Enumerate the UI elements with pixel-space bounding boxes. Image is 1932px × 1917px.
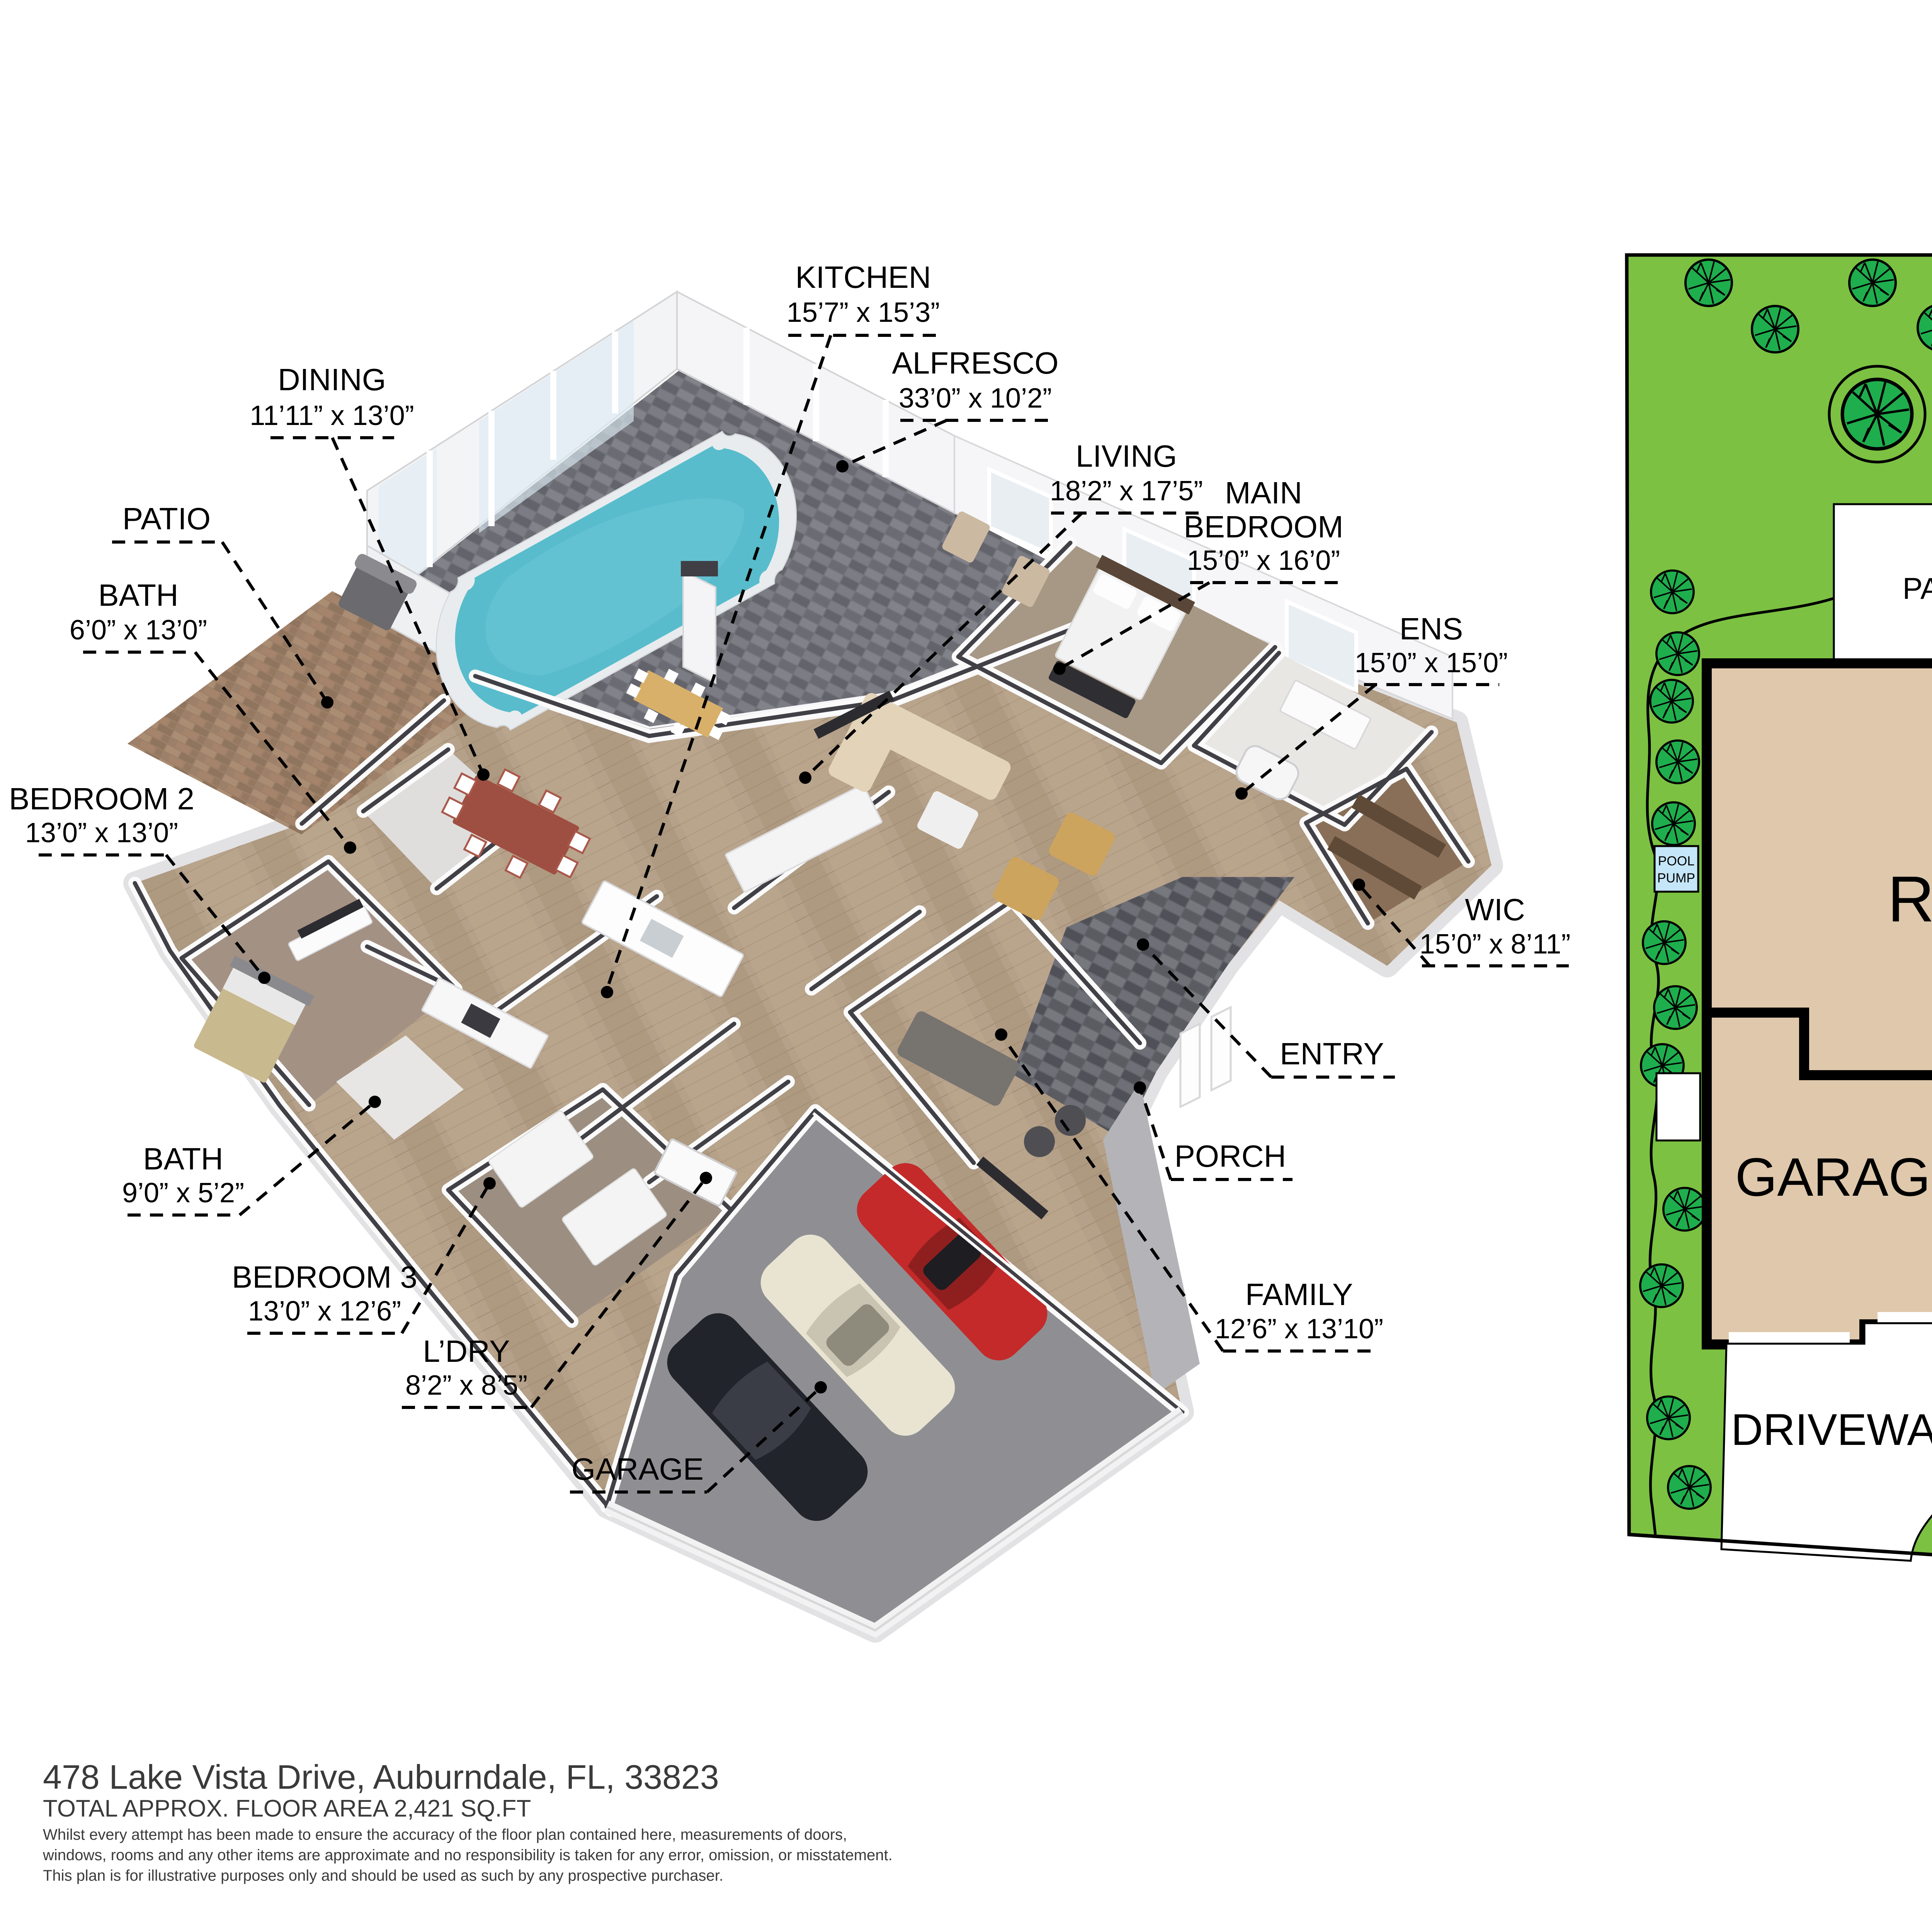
svg-text:PATIO: PATIO	[122, 501, 211, 536]
svg-text:windows, rooms and any other i: windows, rooms and any other items are a…	[43, 1847, 893, 1864]
svg-text:15’0” x 8’11”: 15’0” x 8’11”	[1420, 929, 1571, 960]
svg-text:BEDROOM 2: BEDROOM 2	[9, 782, 194, 816]
svg-text:GARAGE: GARAGE	[571, 1452, 704, 1486]
svg-text:ALFRESCO: ALFRESCO	[892, 346, 1058, 380]
svg-text:13’0” x 13’0”: 13’0” x 13’0”	[25, 817, 178, 848]
svg-text:PORCH: PORCH	[1175, 1139, 1286, 1173]
svg-text:15’7” x 15’3”: 15’7” x 15’3”	[787, 297, 940, 328]
svg-text:ENTRY: ENTRY	[1280, 1037, 1384, 1071]
svg-text:PATIO: PATIO	[1903, 571, 1932, 605]
svg-text:15’0” x 15’0”: 15’0” x 15’0”	[1355, 647, 1508, 678]
svg-text:BEDROOM: BEDROOM	[1184, 510, 1343, 544]
svg-text:LIVING: LIVING	[1076, 439, 1177, 473]
svg-text:478 Lake Vista Drive, Auburnda: 478 Lake Vista Drive, Auburndale, FL, 33…	[43, 1758, 719, 1796]
svg-text:13’0” x 12’6”: 13’0” x 12’6”	[248, 1296, 401, 1327]
svg-text:BEDROOM 3: BEDROOM 3	[232, 1260, 417, 1294]
svg-text:12’6” x 13’10”: 12’6” x 13’10”	[1215, 1314, 1383, 1344]
svg-text:MAIN: MAIN	[1225, 476, 1302, 510]
svg-text:BATH: BATH	[98, 578, 178, 612]
svg-text:This plan is for illustrative: This plan is for illustrative purposes o…	[43, 1867, 723, 1884]
svg-text:DINING: DINING	[278, 362, 386, 397]
svg-text:9’0” x 5’2”: 9’0” x 5’2”	[122, 1178, 244, 1208]
svg-text:RESIDENCE: RESIDENCE	[1888, 863, 1932, 935]
svg-text:ENS: ENS	[1400, 612, 1463, 646]
svg-text:DRIVEWAY: DRIVEWAY	[1731, 1405, 1932, 1455]
svg-text:POOL: POOL	[1658, 854, 1694, 868]
svg-text:11’11” x 13’0”: 11’11” x 13’0”	[250, 400, 414, 431]
svg-text:8’2” x 8’5”: 8’2” x 8’5”	[405, 1370, 527, 1401]
svg-text:PUMP: PUMP	[1657, 871, 1695, 885]
svg-text:KITCHEN: KITCHEN	[795, 260, 931, 294]
svg-text:18’2” x 17’5”: 18’2” x 17’5”	[1050, 476, 1203, 506]
svg-text:FAMILY: FAMILY	[1245, 1277, 1353, 1312]
svg-text:33’0” x 10’2”: 33’0” x 10’2”	[899, 383, 1052, 414]
svg-text:15’0” x 16’0”: 15’0” x 16’0”	[1187, 545, 1340, 576]
svg-text:L’DRY: L’DRY	[423, 1334, 510, 1368]
svg-text:Whilst every attempt has been: Whilst every attempt has been made to en…	[43, 1826, 847, 1843]
svg-text:GARAGE: GARAGE	[1735, 1147, 1932, 1207]
svg-text:WIC: WIC	[1465, 892, 1525, 927]
svg-text:TOTAL APPROX. FLOOR AREA 2,421: TOTAL APPROX. FLOOR AREA 2,421 SQ.FT	[43, 1795, 531, 1822]
svg-text:BATH: BATH	[143, 1142, 223, 1176]
svg-text:6’0” x 13’0”: 6’0” x 13’0”	[70, 615, 207, 646]
